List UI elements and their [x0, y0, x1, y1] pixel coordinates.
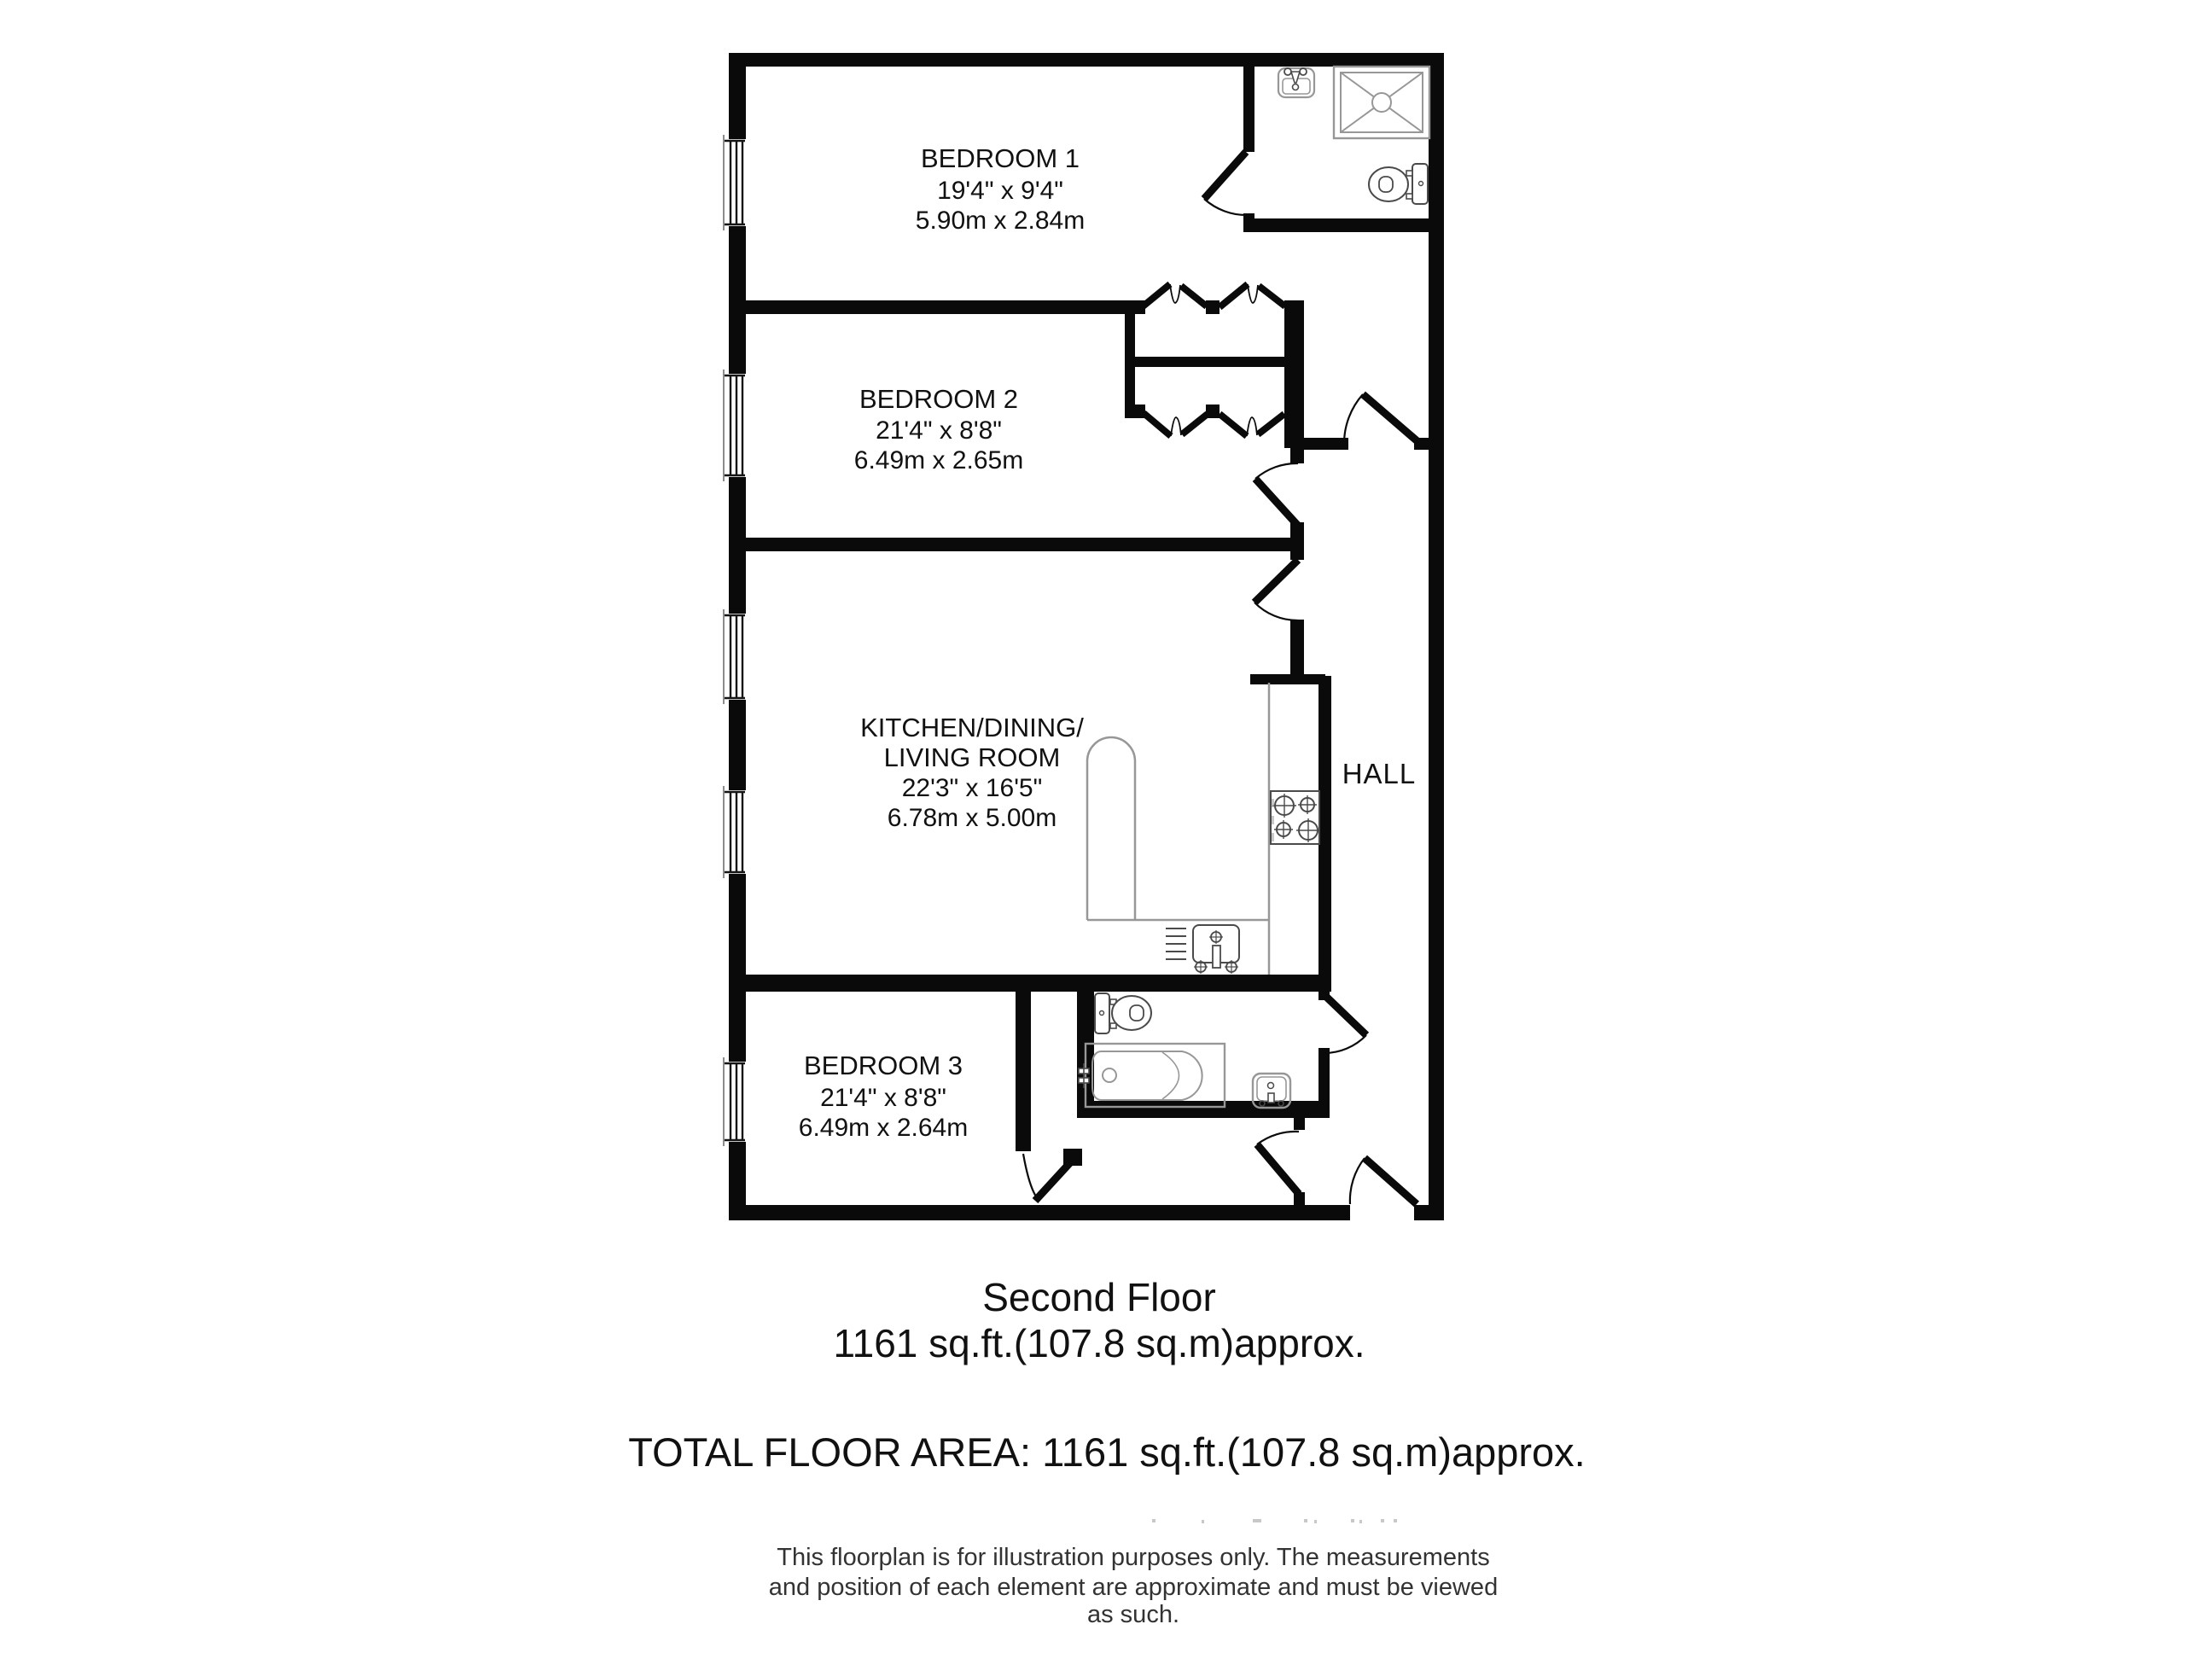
total-floor-area: TOTAL FLOOR AREA: 1161 sq.ft.(107.8 sq.m… [628, 1429, 1586, 1475]
watermark-remnant [1152, 1519, 1397, 1523]
hall-inner-door-icon [1257, 1132, 1299, 1194]
bedroom2-door-icon [1255, 463, 1298, 526]
kitchen-name-line1: KITCHEN/DINING/ [860, 713, 1084, 742]
window-icon [724, 786, 749, 878]
window-icon [724, 609, 749, 704]
ensuite-toilet-icon [1369, 164, 1428, 204]
bathroom-toilet-icon [1095, 993, 1151, 1033]
bedroom3-name: BEDROOM 3 [804, 1051, 963, 1080]
ensuite-door-icon [1204, 152, 1248, 215]
kitchen-size-metric: 6.78m x 5.00m [888, 804, 1057, 832]
bathroom-door-icon [1324, 994, 1366, 1053]
bedroom2-name: BEDROOM 2 [859, 384, 1018, 414]
kitchen-name-line2: LIVING ROOM [884, 742, 1061, 772]
floor-name: Second Floor [982, 1275, 1216, 1319]
bedroom1-size-metric: 5.90m x 2.84m [916, 207, 1085, 235]
entrance-door-icon [1350, 1158, 1417, 1204]
disclaimer-line-3: as such. [1087, 1601, 1179, 1628]
footer: Second Floor 1161 sq.ft.(107.8 sq.m)appr… [628, 1275, 1586, 1628]
kitchen-size-imperial: 22'3" x 16'5" [902, 774, 1043, 802]
bathtub-icon [1079, 1044, 1225, 1107]
shower-icon [1334, 67, 1429, 138]
window-icon [724, 135, 749, 230]
disclaimer-line-1: This floorplan is for illustration purpo… [777, 1544, 1489, 1571]
kitchen-door-icon [1254, 560, 1298, 620]
ensuite-sink-icon [1278, 68, 1314, 97]
kitchen-sink-icon [1166, 925, 1239, 974]
bedroom3-size-imperial: 21'4" x 8'8" [820, 1084, 946, 1112]
window-icon [724, 370, 749, 481]
window-icon [724, 1057, 749, 1146]
disclaimer-line-2: and position of each element are approxi… [769, 1574, 1498, 1601]
bedroom2-size-metric: 6.49m x 2.65m [854, 446, 1023, 474]
kitchen-counter [1087, 683, 1269, 975]
floorplan-page: BEDROOM 1 19'4" x 9'4" 5.90m x 2.84m BED… [0, 0, 2212, 1659]
bedroom1-size-imperial: 19'4" x 9'4" [937, 177, 1063, 205]
hall-name: HALL [1342, 758, 1417, 789]
floor-area: 1161 sq.ft.(107.8 sq.m)approx. [833, 1321, 1365, 1365]
bedroom1-name: BEDROOM 1 [921, 143, 1080, 173]
bedroom3-size-metric: 6.49m x 2.64m [799, 1114, 968, 1142]
hob-icon [1271, 791, 1320, 844]
landing-door-icon [1344, 394, 1418, 444]
bedroom2-size-imperial: 21'4" x 8'8" [876, 416, 1002, 445]
floorplan-drawing: BEDROOM 1 19'4" x 9'4" 5.90m x 2.84m BED… [0, 0, 2212, 1659]
